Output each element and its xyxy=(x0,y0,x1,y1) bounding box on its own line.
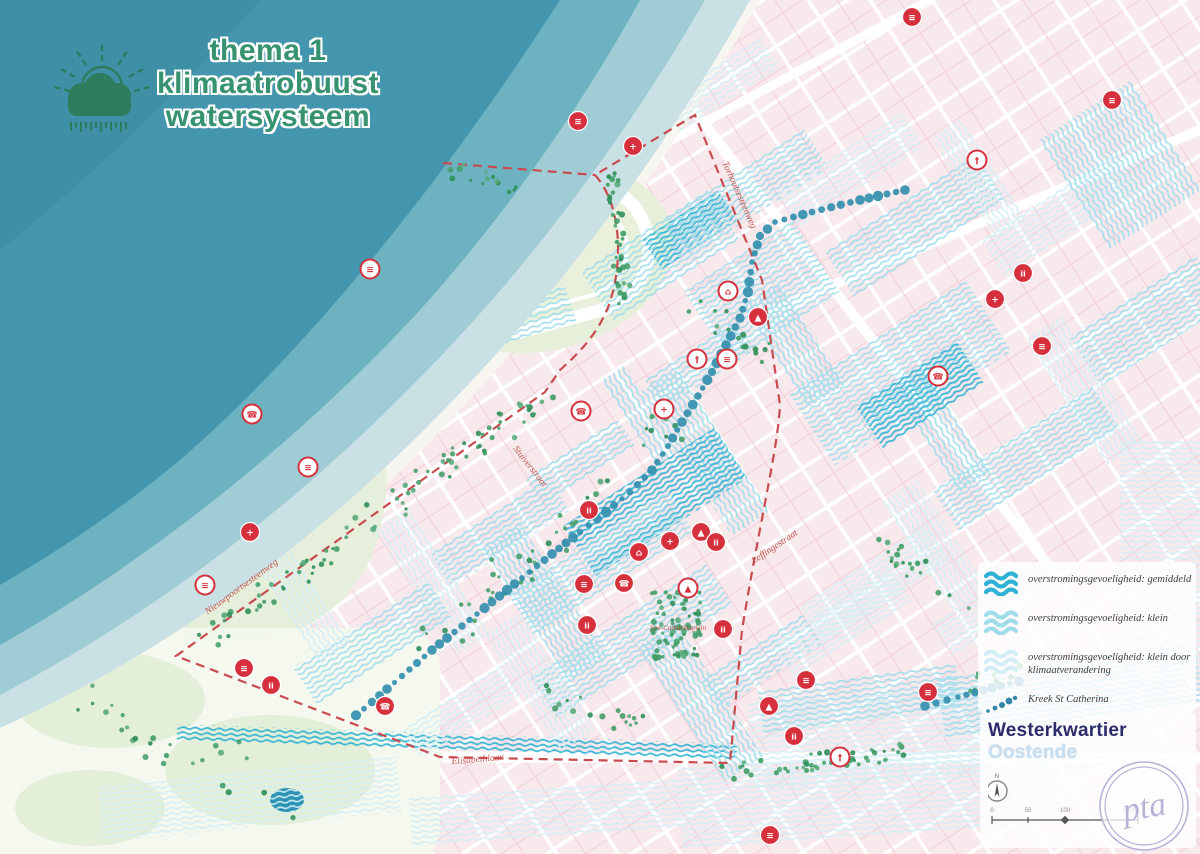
svg-text:≡: ≡ xyxy=(802,676,810,686)
tree-dot xyxy=(401,501,405,505)
tree-dot xyxy=(125,725,129,729)
svg-text:ii: ii xyxy=(1020,269,1026,278)
tree-dot xyxy=(461,163,465,167)
creek-dot xyxy=(847,199,854,206)
pta-logo-text: pta xyxy=(1118,785,1169,829)
svg-text:≡: ≡ xyxy=(304,463,312,473)
tree-dot xyxy=(237,739,242,744)
tree-dot xyxy=(119,728,124,733)
creek-dot xyxy=(683,409,691,417)
tree-dot xyxy=(634,721,637,724)
svg-text:≡: ≡ xyxy=(723,355,731,365)
svg-text:+: + xyxy=(666,537,674,547)
tree-dot xyxy=(476,431,481,436)
tree-dot xyxy=(446,458,450,462)
tree-dot xyxy=(161,761,166,766)
creek-dot xyxy=(749,259,755,265)
creek-dot xyxy=(756,232,764,240)
tree-dot xyxy=(683,598,688,603)
poi-icon: ii xyxy=(714,620,733,639)
tree-dot xyxy=(719,764,724,769)
tree-dot xyxy=(615,240,619,244)
creek-dot xyxy=(382,684,392,694)
tree-dot xyxy=(150,735,156,741)
tree-dot xyxy=(324,549,328,553)
tree-dot xyxy=(226,789,232,795)
creek-dot xyxy=(527,569,533,575)
legend-item-label: Kreek St Catherina xyxy=(1028,690,1109,707)
tree-dot xyxy=(713,331,717,335)
legend-item-label: overstromingsgevoeligheid: klein door kl… xyxy=(1028,648,1196,677)
tree-dot xyxy=(885,540,891,546)
tree-dot xyxy=(655,654,661,660)
tree-dot xyxy=(544,683,549,688)
tree-dot xyxy=(598,479,604,485)
tree-dot xyxy=(894,552,900,558)
svg-text:ii: ii xyxy=(586,506,592,515)
creek-dot xyxy=(451,629,457,635)
tree-dot xyxy=(656,639,662,645)
poi-icon: ≡ xyxy=(299,458,318,477)
svg-text:☎: ☎ xyxy=(246,410,257,420)
tree-dot xyxy=(257,593,262,598)
tree-dot xyxy=(467,602,471,606)
tree-dot xyxy=(442,628,448,634)
poi-icon: ≡ xyxy=(361,260,380,279)
tree-dot xyxy=(923,559,929,565)
tree-dot xyxy=(215,642,221,648)
tree-dot xyxy=(221,612,227,618)
area-name: Westerkwartier xyxy=(988,720,1127,741)
poi-icon: ☎ xyxy=(572,402,591,421)
tree-dot xyxy=(245,608,251,614)
tree-dot xyxy=(857,762,861,766)
tree-dot xyxy=(606,183,610,187)
svg-text:†: † xyxy=(695,355,700,365)
poi-icon: ≡ xyxy=(718,350,737,369)
tree-dot xyxy=(667,594,673,600)
tree-dot xyxy=(688,615,691,618)
tree-dot xyxy=(662,612,666,616)
svg-text:≡: ≡ xyxy=(924,688,932,698)
svg-text:ii: ii xyxy=(791,732,797,741)
tree-dot xyxy=(484,170,487,173)
svg-text:☎: ☎ xyxy=(575,407,586,417)
tree-dot xyxy=(673,643,678,648)
tree-dot xyxy=(742,344,748,350)
poi-icon: ii xyxy=(1014,264,1033,283)
tree-dot xyxy=(200,758,204,762)
creek-dot xyxy=(943,696,950,703)
tree-dot xyxy=(641,714,646,719)
creek-dot xyxy=(721,340,731,350)
creek-dot xyxy=(601,507,611,517)
poi-icon: ii xyxy=(707,533,726,552)
creek-dot xyxy=(413,659,421,667)
tree-dot xyxy=(255,608,259,612)
tree-dot xyxy=(312,565,316,569)
tree-dot xyxy=(472,619,477,624)
legend-item: overstromingsgevoeligheid: klein xyxy=(984,609,1196,635)
tree-dot xyxy=(525,404,528,407)
tree-dot xyxy=(497,427,500,430)
tree-dot xyxy=(450,451,455,456)
tree-dot xyxy=(894,565,898,569)
tree-dot xyxy=(748,772,753,777)
tree-dot xyxy=(614,218,620,224)
tree-dot xyxy=(449,176,455,182)
tree-dot xyxy=(687,309,692,314)
poi-icon: ☎ xyxy=(243,405,262,424)
svg-text:ii: ii xyxy=(584,621,590,630)
creek-dot xyxy=(735,313,744,322)
poi-icon: + xyxy=(661,532,680,551)
tree-dot xyxy=(599,713,605,719)
pta-logo: pta xyxy=(1096,758,1192,854)
poi-icon: ☎ xyxy=(615,574,634,593)
tree-dot xyxy=(90,683,95,688)
tree-dot xyxy=(307,580,311,584)
tree-dot xyxy=(664,435,668,439)
tree-dot xyxy=(558,513,563,518)
tree-dot xyxy=(416,646,421,651)
creek-dot xyxy=(654,459,661,466)
svg-text:▲: ▲ xyxy=(698,528,705,538)
creek-dot xyxy=(790,214,797,221)
tree-dot xyxy=(552,705,558,711)
creek-dot xyxy=(368,698,376,706)
poi-icon: † xyxy=(968,151,987,170)
poi-icon: ≡ xyxy=(1103,91,1122,110)
tree-dot xyxy=(693,647,696,650)
tree-dot xyxy=(822,761,826,765)
tree-dot xyxy=(777,767,782,772)
north-label: N xyxy=(995,773,1000,780)
tree-dot xyxy=(698,591,702,595)
tree-dot xyxy=(269,582,274,587)
tree-dot xyxy=(675,617,681,623)
tree-dot xyxy=(642,444,645,447)
poi-icon: ii xyxy=(785,727,804,746)
tree-dot xyxy=(649,414,654,419)
tree-dot xyxy=(191,762,195,766)
tree-dot xyxy=(223,619,227,623)
tree-dot xyxy=(218,635,222,639)
tree-dot xyxy=(169,743,172,746)
tree-dot xyxy=(471,632,475,636)
tree-dot xyxy=(899,544,904,549)
tree-dot xyxy=(683,607,687,611)
tree-dot xyxy=(490,435,495,440)
tree-dot xyxy=(555,531,558,534)
street-label: Sint-Catharinaplein xyxy=(650,624,707,632)
tree-dot xyxy=(698,601,702,605)
tree-dot xyxy=(331,547,334,550)
tree-dot xyxy=(883,750,886,753)
svg-text:+: + xyxy=(629,142,637,152)
legend-item-label: overstromingsgevoeligheid: klein xyxy=(1028,609,1168,626)
tree-dot xyxy=(715,324,720,329)
tree-dot xyxy=(768,342,771,345)
tree-dot xyxy=(824,749,830,755)
tree-dot xyxy=(724,309,728,313)
tree-dot xyxy=(908,562,912,566)
tree-dot xyxy=(143,754,149,760)
tree-dot xyxy=(227,612,232,617)
tree-dot xyxy=(763,347,768,352)
creek-dot xyxy=(406,666,412,672)
tree-dot xyxy=(804,762,809,767)
tree-dot xyxy=(622,281,626,285)
creek-dot xyxy=(747,269,754,276)
poster-title: thema 1 klimaatrobuust watersysteem xyxy=(128,34,408,133)
poi-icon: † xyxy=(688,350,707,369)
tree-dot xyxy=(891,748,894,751)
creek-dot xyxy=(351,710,361,720)
creek-dot xyxy=(700,385,706,391)
tree-dot xyxy=(810,768,814,772)
creek-dot xyxy=(495,591,504,600)
tree-dot xyxy=(629,723,632,726)
tree-dot xyxy=(616,178,621,183)
poi-icon: ≡ xyxy=(919,683,938,702)
creek-dot xyxy=(442,633,452,643)
tree-dot xyxy=(460,638,466,644)
tree-dot xyxy=(901,752,907,758)
tree-dot xyxy=(608,201,612,205)
creek-dot xyxy=(688,400,698,410)
tree-dot xyxy=(497,412,501,416)
tree-dot xyxy=(164,753,169,758)
poi-icon: + xyxy=(655,400,674,419)
tree-dot xyxy=(490,572,496,578)
tree-dot xyxy=(618,257,623,262)
tree-dot xyxy=(540,400,545,405)
legend-item-label: overstromingsgevoeligheid: gemiddeld xyxy=(1028,570,1191,587)
tree-dot xyxy=(527,408,532,413)
tree-dot xyxy=(866,758,870,762)
svg-text:+: + xyxy=(991,295,999,305)
tree-dot xyxy=(403,483,408,488)
tree-dot xyxy=(404,507,407,510)
tree-dot xyxy=(301,560,306,565)
tree-dot xyxy=(731,776,737,782)
creek-dot xyxy=(900,185,910,195)
tree-dot xyxy=(654,648,659,653)
legend-swatch-wave-icon xyxy=(984,570,1018,596)
tree-dot xyxy=(585,496,589,500)
creek-dot xyxy=(392,680,397,685)
creek-dot xyxy=(435,639,444,648)
poi-icon: ▲ xyxy=(679,579,698,598)
tree-dot xyxy=(261,790,267,796)
tree-dot xyxy=(403,513,407,517)
tree-dot xyxy=(395,497,399,501)
tree-dot xyxy=(649,428,655,434)
svg-text:☎: ☎ xyxy=(932,372,943,382)
creek-dot xyxy=(702,375,712,385)
tree-dot xyxy=(809,763,814,768)
tree-dot xyxy=(887,550,891,554)
tree-dot xyxy=(645,427,648,430)
tree-dot xyxy=(512,435,517,440)
creek-dot xyxy=(818,206,825,213)
tree-dot xyxy=(282,587,286,591)
svg-text:≡: ≡ xyxy=(574,117,582,127)
tree-dot xyxy=(334,546,340,552)
legend-swatch-dots-icon xyxy=(984,690,1018,716)
title-line-3: watersysteem xyxy=(128,100,408,133)
tree-dot xyxy=(742,760,746,764)
tree-dot xyxy=(210,620,216,626)
tree-dot xyxy=(322,558,326,562)
tree-dot xyxy=(491,591,495,595)
poi-icon: ⌂ xyxy=(630,543,649,562)
rain-icon xyxy=(71,122,126,132)
tree-dot xyxy=(411,488,416,493)
tree-dot xyxy=(406,491,411,496)
svg-text:≡: ≡ xyxy=(766,831,774,841)
tree-dot xyxy=(853,759,856,762)
poi-icon: † xyxy=(831,748,850,767)
creek-dot xyxy=(519,575,525,581)
tree-dot xyxy=(441,459,446,464)
tree-dot xyxy=(870,748,873,751)
poi-icon: ▲ xyxy=(749,308,768,327)
tree-dot xyxy=(872,750,877,755)
tree-dot xyxy=(491,175,495,179)
tree-dot xyxy=(948,593,952,597)
tree-dot xyxy=(753,351,758,356)
tree-dot xyxy=(613,224,617,228)
tree-dot xyxy=(546,688,551,693)
creek-dot xyxy=(753,240,762,249)
tree-dot xyxy=(671,618,675,622)
tree-dot xyxy=(245,756,249,760)
tree-dot xyxy=(329,561,333,565)
creek-dot xyxy=(708,368,716,376)
tree-dot xyxy=(605,478,610,483)
scale-50: 50 xyxy=(1025,808,1032,814)
tree-dot xyxy=(621,237,625,241)
creek-dot xyxy=(577,529,583,535)
tree-dot xyxy=(916,561,920,565)
tree-dot xyxy=(566,699,569,702)
poi-icon: + xyxy=(624,137,643,156)
tree-dot xyxy=(736,336,741,341)
creek-dot xyxy=(809,209,816,216)
creek-dot xyxy=(634,481,641,488)
tree-dot xyxy=(615,256,618,259)
creek-dot xyxy=(562,539,571,548)
creek-dot xyxy=(694,392,702,400)
svg-text:≡: ≡ xyxy=(1038,342,1046,352)
tree-dot xyxy=(664,590,668,594)
tree-dot xyxy=(148,741,153,746)
tree-dot xyxy=(620,713,626,719)
tree-dot xyxy=(760,360,764,364)
svg-text:⌂: ⌂ xyxy=(636,548,643,558)
creek-dot xyxy=(752,250,758,256)
creek-dot xyxy=(732,323,740,331)
tree-dot xyxy=(76,708,80,712)
tree-dot xyxy=(514,185,518,189)
tree-dot xyxy=(695,653,700,658)
tree-dot xyxy=(890,559,894,563)
poi-icon: + xyxy=(986,290,1005,309)
tree-dot xyxy=(290,815,295,820)
creek-dot xyxy=(541,556,549,564)
svg-text:ii: ii xyxy=(268,681,274,690)
svg-text:†: † xyxy=(838,753,843,763)
tree-dot xyxy=(617,302,621,306)
svg-text:+: + xyxy=(660,405,668,415)
tree-dot xyxy=(901,561,905,565)
tree-dot xyxy=(345,525,349,529)
svg-text:†: † xyxy=(975,156,980,166)
tree-dot xyxy=(616,211,620,215)
tree-dot xyxy=(364,502,370,508)
creek-dot xyxy=(726,331,736,341)
tree-dot xyxy=(693,633,699,639)
tree-dot xyxy=(483,451,488,456)
creek-dot xyxy=(427,645,437,655)
tree-dot xyxy=(494,179,499,184)
tree-dot xyxy=(673,596,676,599)
tree-dot xyxy=(817,751,822,756)
tree-dot xyxy=(657,599,662,604)
tree-dot xyxy=(213,743,219,749)
tree-dot xyxy=(448,475,452,479)
tree-dot xyxy=(271,599,277,605)
poi-icon: + xyxy=(241,523,260,542)
legend-item: overstromingsgevoeligheid: klein door kl… xyxy=(984,648,1196,677)
tree-dot xyxy=(425,632,428,635)
tree-dot xyxy=(679,436,685,442)
tree-dot xyxy=(611,264,616,269)
svg-text:ii: ii xyxy=(713,538,719,547)
tree-dot xyxy=(656,611,660,615)
tree-dot xyxy=(414,469,418,473)
poi-icon: ≡ xyxy=(761,826,780,845)
creek-dot xyxy=(422,654,428,660)
creek-dot xyxy=(677,417,687,427)
tree-dot xyxy=(699,299,703,303)
poi-icon: ≡ xyxy=(903,8,922,27)
tree-dot xyxy=(607,194,612,199)
tree-dot xyxy=(680,603,683,606)
poi-icon: ii xyxy=(262,676,281,695)
tree-dot xyxy=(478,444,482,448)
tree-dot xyxy=(448,167,454,173)
creek-dot xyxy=(660,451,666,457)
tree-dot xyxy=(133,736,139,742)
creek-dot xyxy=(873,191,883,201)
svg-text:ii: ii xyxy=(720,625,726,634)
tree-dot xyxy=(442,453,446,457)
svg-text:☎: ☎ xyxy=(618,579,629,589)
tree-dot xyxy=(615,281,619,285)
tree-dot xyxy=(905,574,909,578)
creek-dot xyxy=(674,427,680,433)
tree-dot xyxy=(489,557,494,562)
tree-dot xyxy=(681,653,687,659)
tree-dot xyxy=(783,767,787,771)
tree-dot xyxy=(695,611,701,617)
tree-dot xyxy=(344,535,348,539)
tree-dot xyxy=(910,566,914,570)
tree-dot xyxy=(420,626,426,632)
